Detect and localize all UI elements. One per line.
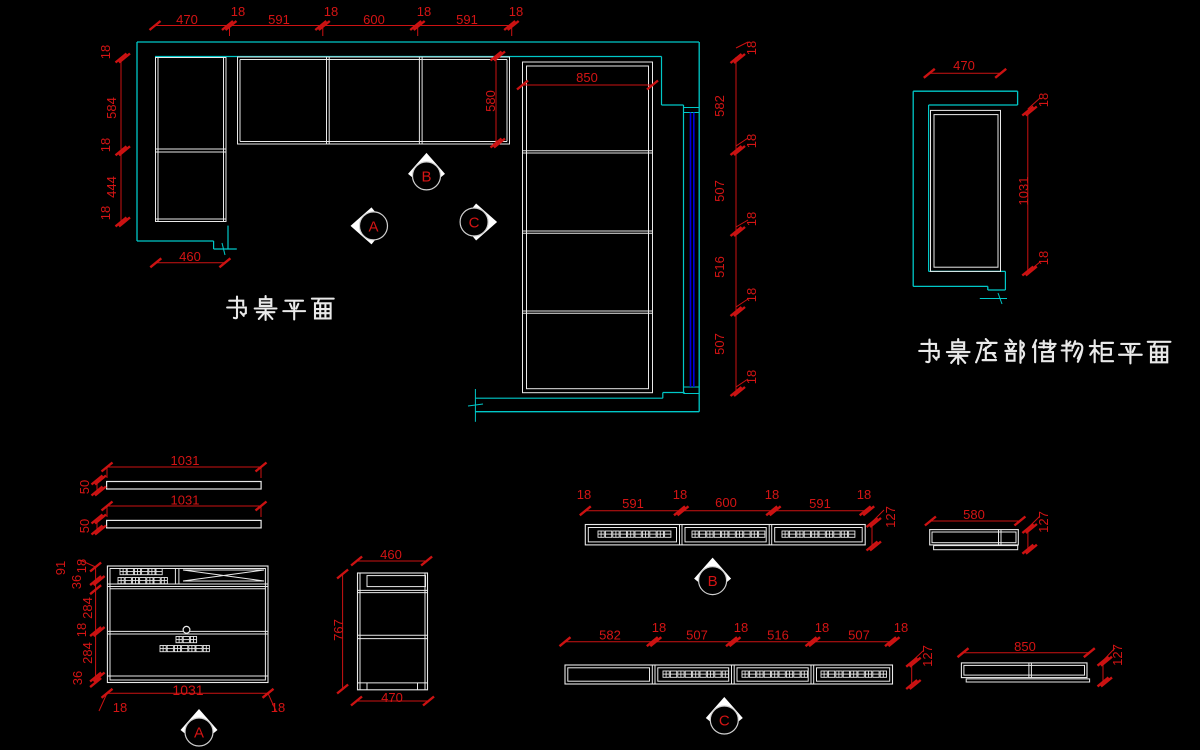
svg-text:850: 850 bbox=[1014, 639, 1036, 654]
svg-text:C: C bbox=[469, 215, 480, 232]
svg-text:591: 591 bbox=[622, 496, 644, 511]
svg-text:B: B bbox=[421, 168, 431, 185]
svg-text:18: 18 bbox=[417, 4, 431, 19]
svg-text:18: 18 bbox=[324, 4, 338, 19]
svg-text:1031: 1031 bbox=[171, 493, 200, 508]
svg-text:18: 18 bbox=[74, 623, 89, 637]
svg-text:584: 584 bbox=[104, 97, 119, 119]
svg-text:507: 507 bbox=[848, 628, 870, 643]
svg-text:18: 18 bbox=[857, 487, 871, 502]
svg-text:127: 127 bbox=[883, 506, 898, 528]
svg-text:18: 18 bbox=[98, 206, 113, 220]
svg-text:580: 580 bbox=[483, 90, 498, 112]
svg-text:18: 18 bbox=[652, 620, 666, 635]
svg-text:18: 18 bbox=[744, 370, 759, 384]
svg-text:18: 18 bbox=[1036, 93, 1051, 107]
svg-text:18: 18 bbox=[744, 134, 759, 148]
svg-text:18: 18 bbox=[673, 487, 687, 502]
svg-text:18: 18 bbox=[815, 620, 829, 635]
svg-text:18: 18 bbox=[744, 288, 759, 302]
svg-text:18: 18 bbox=[74, 559, 89, 573]
svg-text:591: 591 bbox=[268, 12, 290, 27]
svg-text:582: 582 bbox=[712, 95, 727, 117]
svg-text:18: 18 bbox=[734, 620, 748, 635]
svg-text:18: 18 bbox=[577, 487, 591, 502]
svg-text:18: 18 bbox=[231, 4, 245, 19]
svg-text:591: 591 bbox=[456, 12, 478, 27]
svg-text:1031: 1031 bbox=[1016, 177, 1031, 206]
svg-text:507: 507 bbox=[712, 333, 727, 355]
svg-text:460: 460 bbox=[179, 249, 201, 264]
svg-text:18: 18 bbox=[1036, 251, 1051, 265]
svg-text:36: 36 bbox=[70, 671, 85, 685]
svg-text:444: 444 bbox=[104, 176, 119, 198]
svg-text:18: 18 bbox=[744, 212, 759, 226]
svg-text:50: 50 bbox=[77, 480, 92, 494]
svg-text:284: 284 bbox=[80, 597, 95, 619]
svg-text:127: 127 bbox=[920, 645, 935, 667]
svg-text:1031: 1031 bbox=[171, 453, 200, 468]
svg-text:470: 470 bbox=[176, 12, 198, 27]
svg-text:600: 600 bbox=[715, 495, 737, 510]
svg-text:516: 516 bbox=[767, 628, 789, 643]
svg-text:460: 460 bbox=[380, 547, 402, 562]
svg-text:470: 470 bbox=[381, 690, 403, 705]
svg-text:18: 18 bbox=[98, 45, 113, 59]
svg-text:767: 767 bbox=[331, 619, 346, 641]
svg-text:36: 36 bbox=[69, 575, 84, 589]
svg-text:1031: 1031 bbox=[172, 682, 203, 698]
svg-text:516: 516 bbox=[712, 256, 727, 278]
svg-text:18: 18 bbox=[744, 41, 759, 55]
svg-text:18: 18 bbox=[509, 4, 523, 19]
svg-text:600: 600 bbox=[363, 12, 385, 27]
svg-text:50: 50 bbox=[77, 519, 92, 533]
svg-text:127: 127 bbox=[1036, 511, 1051, 533]
svg-text:B: B bbox=[708, 573, 718, 590]
svg-text:A: A bbox=[194, 725, 204, 742]
svg-text:580: 580 bbox=[963, 507, 985, 522]
svg-text:850: 850 bbox=[576, 70, 598, 85]
svg-text:470: 470 bbox=[953, 58, 975, 73]
svg-text:C: C bbox=[719, 713, 730, 730]
svg-text:582: 582 bbox=[599, 628, 621, 643]
svg-text:18: 18 bbox=[113, 700, 127, 715]
svg-text:18: 18 bbox=[765, 487, 779, 502]
svg-text:18: 18 bbox=[98, 138, 113, 152]
svg-text:591: 591 bbox=[809, 496, 831, 511]
svg-text:18: 18 bbox=[894, 620, 908, 635]
svg-text:18: 18 bbox=[271, 700, 285, 715]
svg-text:91: 91 bbox=[53, 561, 68, 575]
svg-text:A: A bbox=[368, 218, 378, 235]
svg-text:127: 127 bbox=[1110, 644, 1125, 666]
svg-text:284: 284 bbox=[80, 642, 95, 664]
svg-text:507: 507 bbox=[712, 180, 727, 202]
svg-text:507: 507 bbox=[686, 628, 708, 643]
